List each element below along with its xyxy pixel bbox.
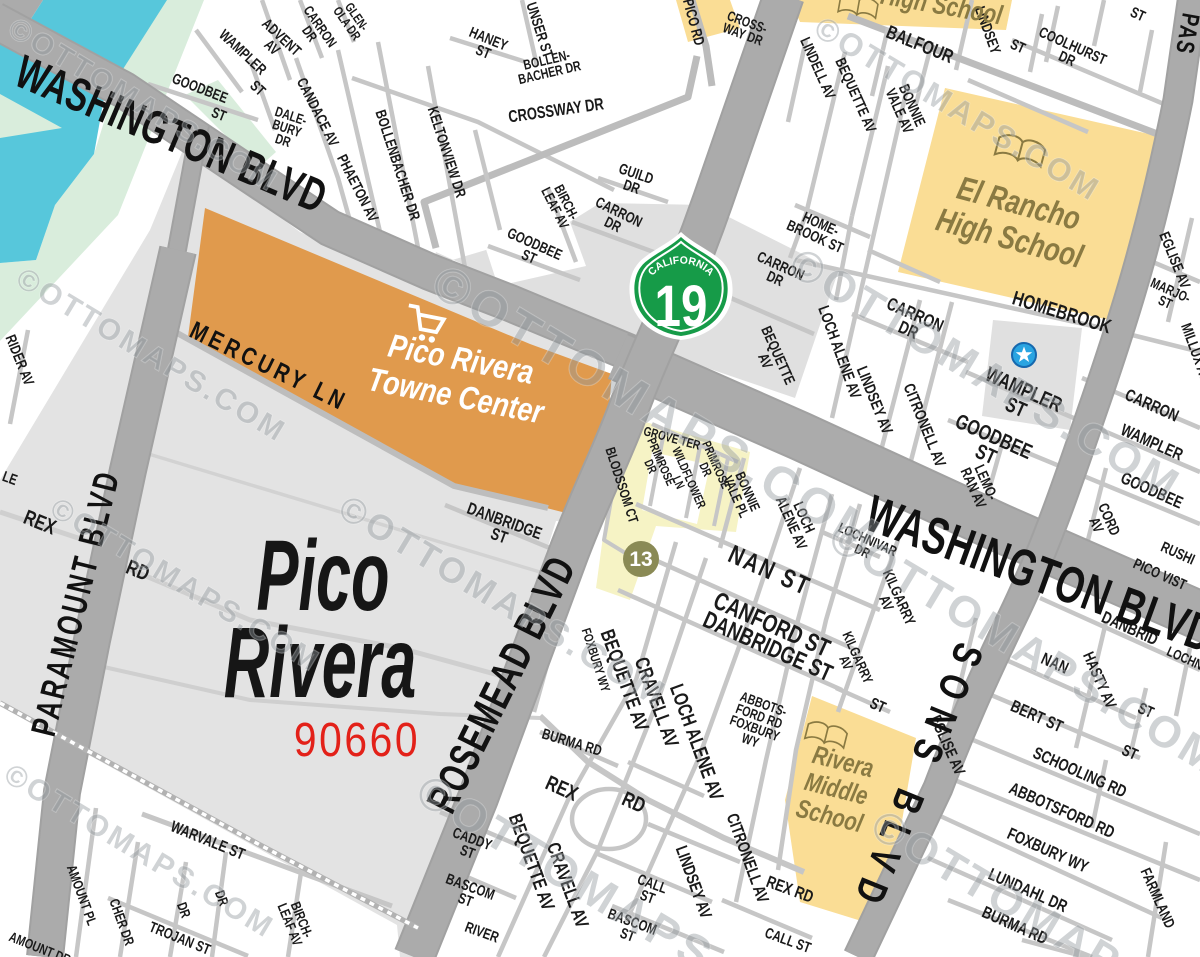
svg-text:19: 19 (655, 275, 708, 340)
svg-text:90660: 90660 (294, 714, 420, 767)
svg-text:13: 13 (629, 548, 652, 571)
